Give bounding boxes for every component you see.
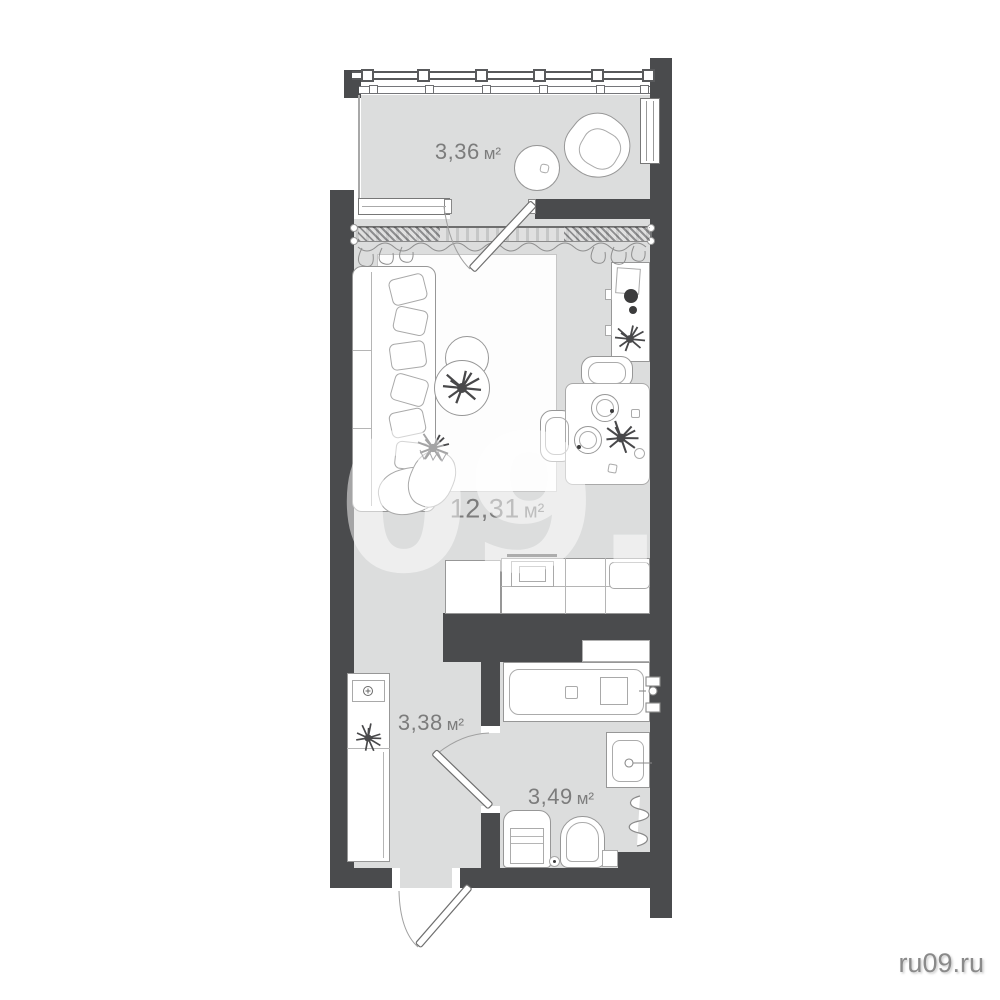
plate-food [577, 445, 581, 449]
plate-food [610, 409, 614, 413]
hallway-area-unit: м² [447, 715, 464, 734]
electric-panel [352, 680, 385, 702]
glazing-post [533, 69, 546, 82]
kitchen-cabinet [445, 560, 501, 614]
right-wall [650, 58, 672, 918]
balcony-area-value: 3,36 [435, 139, 480, 164]
bathroom-area-unit: м² [577, 789, 594, 808]
balcony-area-unit: м² [484, 144, 501, 163]
dining-chair-top-seat [588, 362, 626, 384]
glazing-inner-post [369, 85, 378, 94]
bathroom-door-opening [481, 733, 500, 806]
glazing-inner-post [425, 85, 434, 94]
curtain-finial [350, 237, 358, 245]
balcony-area-label: 3,36м² [435, 139, 501, 165]
bath-door-jamb-top [481, 726, 500, 733]
hood-line [507, 554, 557, 557]
pillow [388, 340, 427, 372]
stove-inner [519, 566, 546, 582]
table-item [631, 409, 640, 418]
hallway-area-value: 3,38 [398, 710, 443, 735]
entrance-threshold [400, 870, 452, 888]
balcony-divider-wall [535, 199, 650, 219]
toilet-bowl [566, 822, 599, 862]
washbasin-bowl [612, 740, 644, 782]
plate-inner [579, 431, 597, 449]
desk-handle [605, 325, 612, 336]
bottom-wall-left [330, 868, 400, 888]
door-jamb-marker [528, 199, 536, 214]
sofa-back-line [371, 272, 372, 506]
corner-watermark: ru09.ru [898, 948, 984, 979]
sofa-seat-line [353, 350, 371, 351]
floor-drain-dot [553, 860, 556, 863]
hallway-area-label: 3,38м² [398, 710, 464, 736]
bathroom-left-wall-upper [481, 662, 500, 726]
side-window [640, 98, 660, 164]
curtain-bunch-right [564, 227, 650, 241]
turntable [624, 289, 638, 303]
bathtub-shelf [600, 677, 628, 705]
living-room-area-value: 12,31 [450, 494, 520, 524]
table-item [634, 448, 645, 459]
glazing-post [475, 69, 488, 82]
table-item [607, 463, 617, 473]
entrance-jamb-left [392, 868, 400, 888]
glazing-post [642, 69, 655, 82]
balcony-side-line [358, 95, 360, 199]
bathroom-area-label: 3,49м² [528, 784, 594, 810]
glazing-inner-post [596, 85, 605, 94]
balcony-table [514, 145, 560, 191]
toilet-brush [602, 850, 618, 867]
bathtub-drain [565, 686, 578, 699]
bathroom-area-value: 3,49 [528, 784, 573, 809]
washing-machine-line [511, 836, 543, 837]
glazing-post [417, 69, 430, 82]
curtain-bunch-left [358, 227, 440, 241]
wardrobe-door-line [383, 752, 384, 858]
glazing-inner-rail [359, 86, 650, 94]
window-sill-line [362, 206, 446, 207]
glazing-inner-post [482, 85, 491, 94]
bath-niche [582, 640, 650, 662]
living-room-area-label: 12,31м² [450, 494, 545, 525]
glazing-inner-post [640, 85, 649, 94]
glazing-outer-rail [352, 71, 652, 80]
side-window-pane-line [646, 101, 647, 161]
living-room-area-unit: м² [524, 501, 544, 523]
washing-machine-door [510, 828, 544, 864]
bath-door-jamb-bottom [481, 806, 500, 813]
floor-plan: 3,36м² 12,31м² 3,38м² 3,49м² RU09.RU ru0… [0, 0, 1000, 1000]
glazing-inner-post [539, 85, 548, 94]
plate-inner [596, 399, 614, 417]
entrance-door [399, 884, 472, 947]
coffee-table-large [434, 360, 490, 416]
desk-handle [605, 289, 612, 300]
curtain-finial [350, 224, 358, 232]
glazing-post [361, 69, 374, 82]
kitchen-sink [609, 562, 650, 589]
wardrobe-divider [347, 748, 390, 749]
entrance-jamb-right [452, 868, 460, 888]
washing-machine-line [511, 843, 543, 844]
glazing-post [591, 69, 604, 82]
bathroom-step-wall [618, 852, 652, 888]
side-window-pane-line [653, 101, 654, 161]
dining-chair-left-seat [545, 417, 569, 455]
balcony-door-opening [450, 199, 535, 219]
sofa-seat-line [353, 428, 371, 429]
turntable-small [629, 306, 637, 314]
